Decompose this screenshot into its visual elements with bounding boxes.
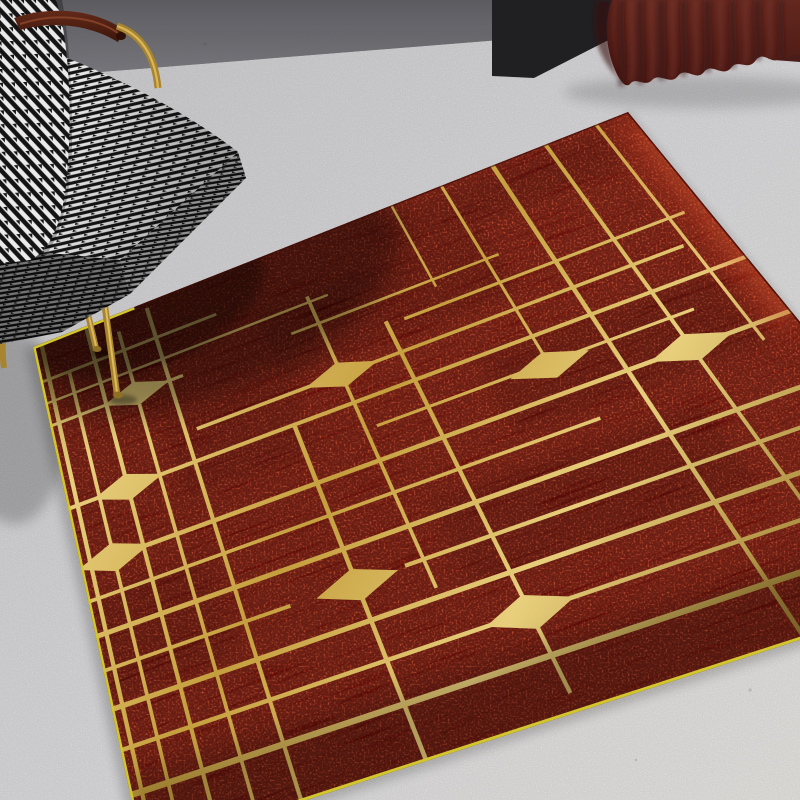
scene-photo	[0, 0, 800, 800]
room-scene	[0, 0, 800, 800]
leg-shadow	[109, 395, 137, 405]
wood-armrest-endcap	[116, 32, 126, 40]
